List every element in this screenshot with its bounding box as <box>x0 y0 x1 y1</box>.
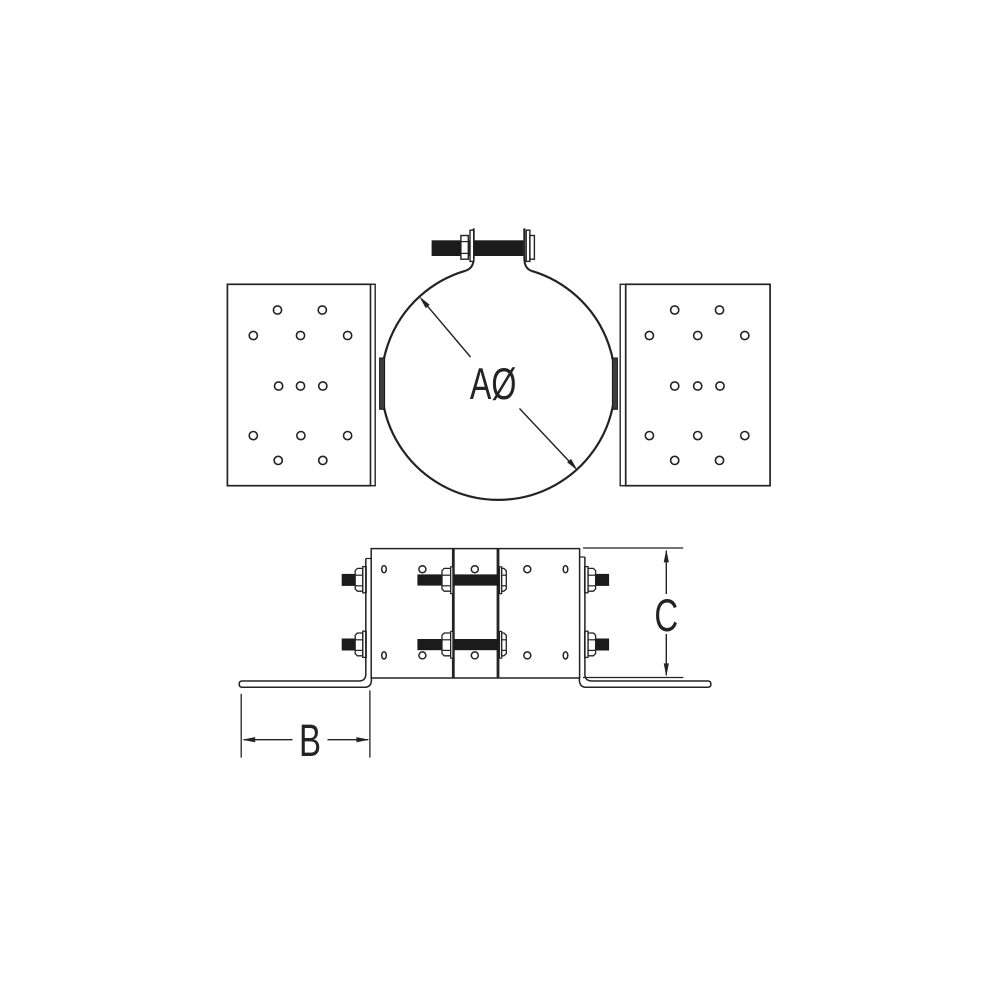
svg-text:B: B <box>299 716 321 766</box>
svg-text:C: C <box>654 591 678 641</box>
svg-text:AØ: AØ <box>470 360 516 409</box>
